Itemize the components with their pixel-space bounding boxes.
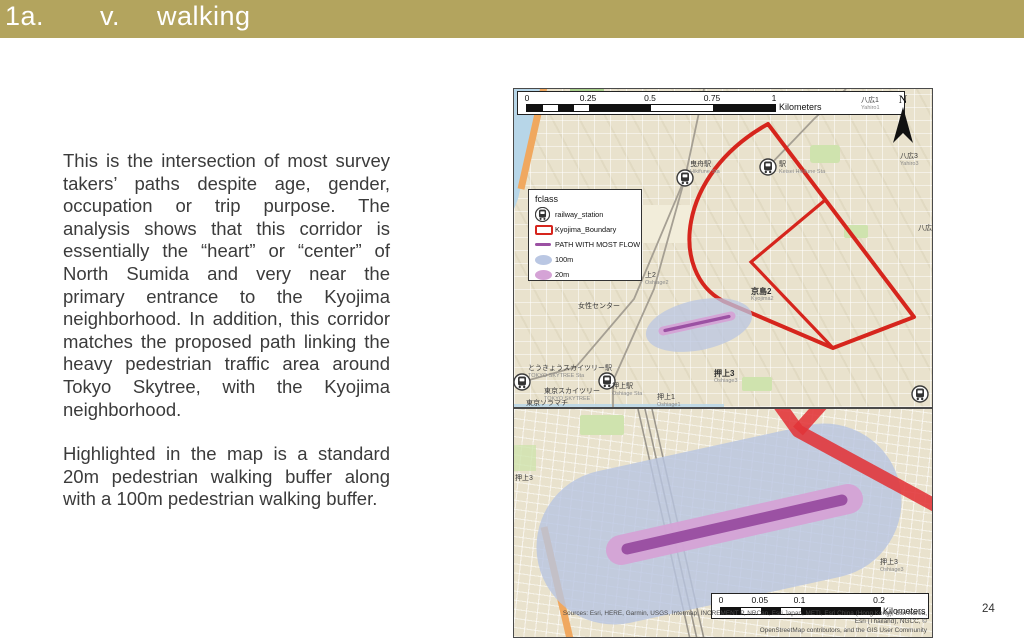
attribution-line-2: OpenStreetMap contributors, and the GIS … bbox=[555, 627, 927, 635]
legend-label: railway_station bbox=[555, 210, 603, 219]
scale-tick: 0.75 bbox=[704, 93, 721, 103]
slide: 1a. v. walking This is the intersection … bbox=[0, 0, 1024, 643]
north-arrow-icon bbox=[890, 105, 916, 145]
place-label: 押上1Oshiage1 bbox=[657, 394, 681, 408]
place-label: 押上3Oshiage3 bbox=[880, 559, 904, 573]
attribution-line-1: Sources: Esri, HERE, Garmin, USGS, Inter… bbox=[555, 610, 927, 627]
scale-tick: 0.2 bbox=[873, 595, 885, 605]
railway-station-icon bbox=[912, 386, 928, 402]
place-label: 八広 bbox=[918, 225, 932, 233]
station-label: とうきょうスカイツリー駅TOKYO SKYTREE Sta bbox=[528, 365, 612, 379]
page-title: walking bbox=[157, 1, 251, 32]
legend-label: 20m bbox=[555, 270, 569, 279]
place-label: 女性センター bbox=[578, 303, 620, 311]
scale-tick: 0.05 bbox=[752, 595, 769, 605]
scale-unit: Kilometers bbox=[779, 102, 822, 112]
body-text-block: This is the intersection of most survey … bbox=[63, 150, 390, 533]
railway-station-icon bbox=[760, 159, 776, 175]
path-swatch bbox=[535, 243, 555, 246]
place-label: 京島2Kyojima2 bbox=[751, 287, 774, 303]
place-label: 八広3Yahiro3 bbox=[900, 153, 919, 167]
legend-row-railway-station: railway_station bbox=[535, 207, 641, 222]
buffer-20m-swatch bbox=[535, 270, 555, 280]
scale-bar-top: 0 0.25 0.5 0.75 1 Kilometers bbox=[517, 91, 905, 115]
body-paragraph-2: Highlighted in the map is a standard 20m… bbox=[63, 443, 390, 511]
station-label: 駅Keisei Hikifune Sta bbox=[779, 161, 825, 175]
park-area bbox=[580, 415, 624, 435]
open-block bbox=[636, 205, 692, 243]
place-label: 東京ソラマチ bbox=[526, 400, 568, 408]
scale-bar-graphic bbox=[526, 104, 776, 112]
scale-tick: 0 bbox=[525, 93, 530, 103]
buffer-100m-swatch bbox=[535, 255, 555, 265]
scale-tick: 0.25 bbox=[580, 93, 597, 103]
legend-row-boundary: Kyojima_Boundary bbox=[535, 222, 641, 237]
boundary-swatch bbox=[535, 225, 555, 235]
scale-tick: 0.5 bbox=[644, 93, 656, 103]
park-area bbox=[742, 377, 772, 391]
railway-station-icon bbox=[535, 207, 555, 222]
park-area bbox=[514, 445, 536, 471]
kyojima-boundary-internal bbox=[751, 201, 833, 348]
title-list-index: v. bbox=[100, 1, 120, 32]
legend-row-path: PATH WITH MOST FLOW bbox=[535, 237, 641, 252]
place-label: 八広1Yahiro1 bbox=[861, 97, 880, 111]
title-number: 1a. bbox=[5, 1, 44, 32]
title-bar: 1a. v. walking bbox=[0, 0, 1024, 38]
map-overview: 0 0.25 0.5 0.75 1 Kilometers fclass rail… bbox=[513, 88, 933, 408]
scale-tick: 1 bbox=[772, 93, 777, 103]
page-number: 24 bbox=[982, 603, 995, 615]
legend-label: PATH WITH MOST FLOW bbox=[555, 240, 640, 249]
station-label: 曳舟駅Hikifune Sta bbox=[690, 161, 720, 175]
legend-row-20m: 20m bbox=[535, 267, 641, 282]
body-paragraph-1: This is the intersection of most survey … bbox=[63, 150, 390, 421]
place-label: 上2Oshiage2 bbox=[645, 272, 669, 286]
station-label: 押上駅Oshiage Sta bbox=[612, 383, 642, 397]
place-label: 押上3Oshiage3 bbox=[714, 369, 738, 385]
legend-title: fclass bbox=[535, 194, 641, 204]
map-attribution: Sources: Esri, HERE, Garmin, USGS, Inter… bbox=[555, 610, 927, 635]
north-label: N bbox=[890, 93, 916, 105]
map-detail: 押上3Oshiage3 押上3 0 0.05 0.1 0.2 Kilometer… bbox=[513, 408, 933, 638]
legend-box: fclass railway_station Kyojima_Boundary … bbox=[528, 189, 642, 281]
legend-label: Kyojima_Boundary bbox=[555, 225, 616, 234]
north-arrow: N bbox=[890, 93, 916, 150]
legend-label: 100m bbox=[555, 255, 573, 264]
place-label: 押上3 bbox=[515, 475, 533, 483]
scale-tick: 0.1 bbox=[794, 595, 806, 605]
legend-row-100m: 100m bbox=[535, 252, 641, 267]
scale-tick: 0 bbox=[719, 595, 724, 605]
